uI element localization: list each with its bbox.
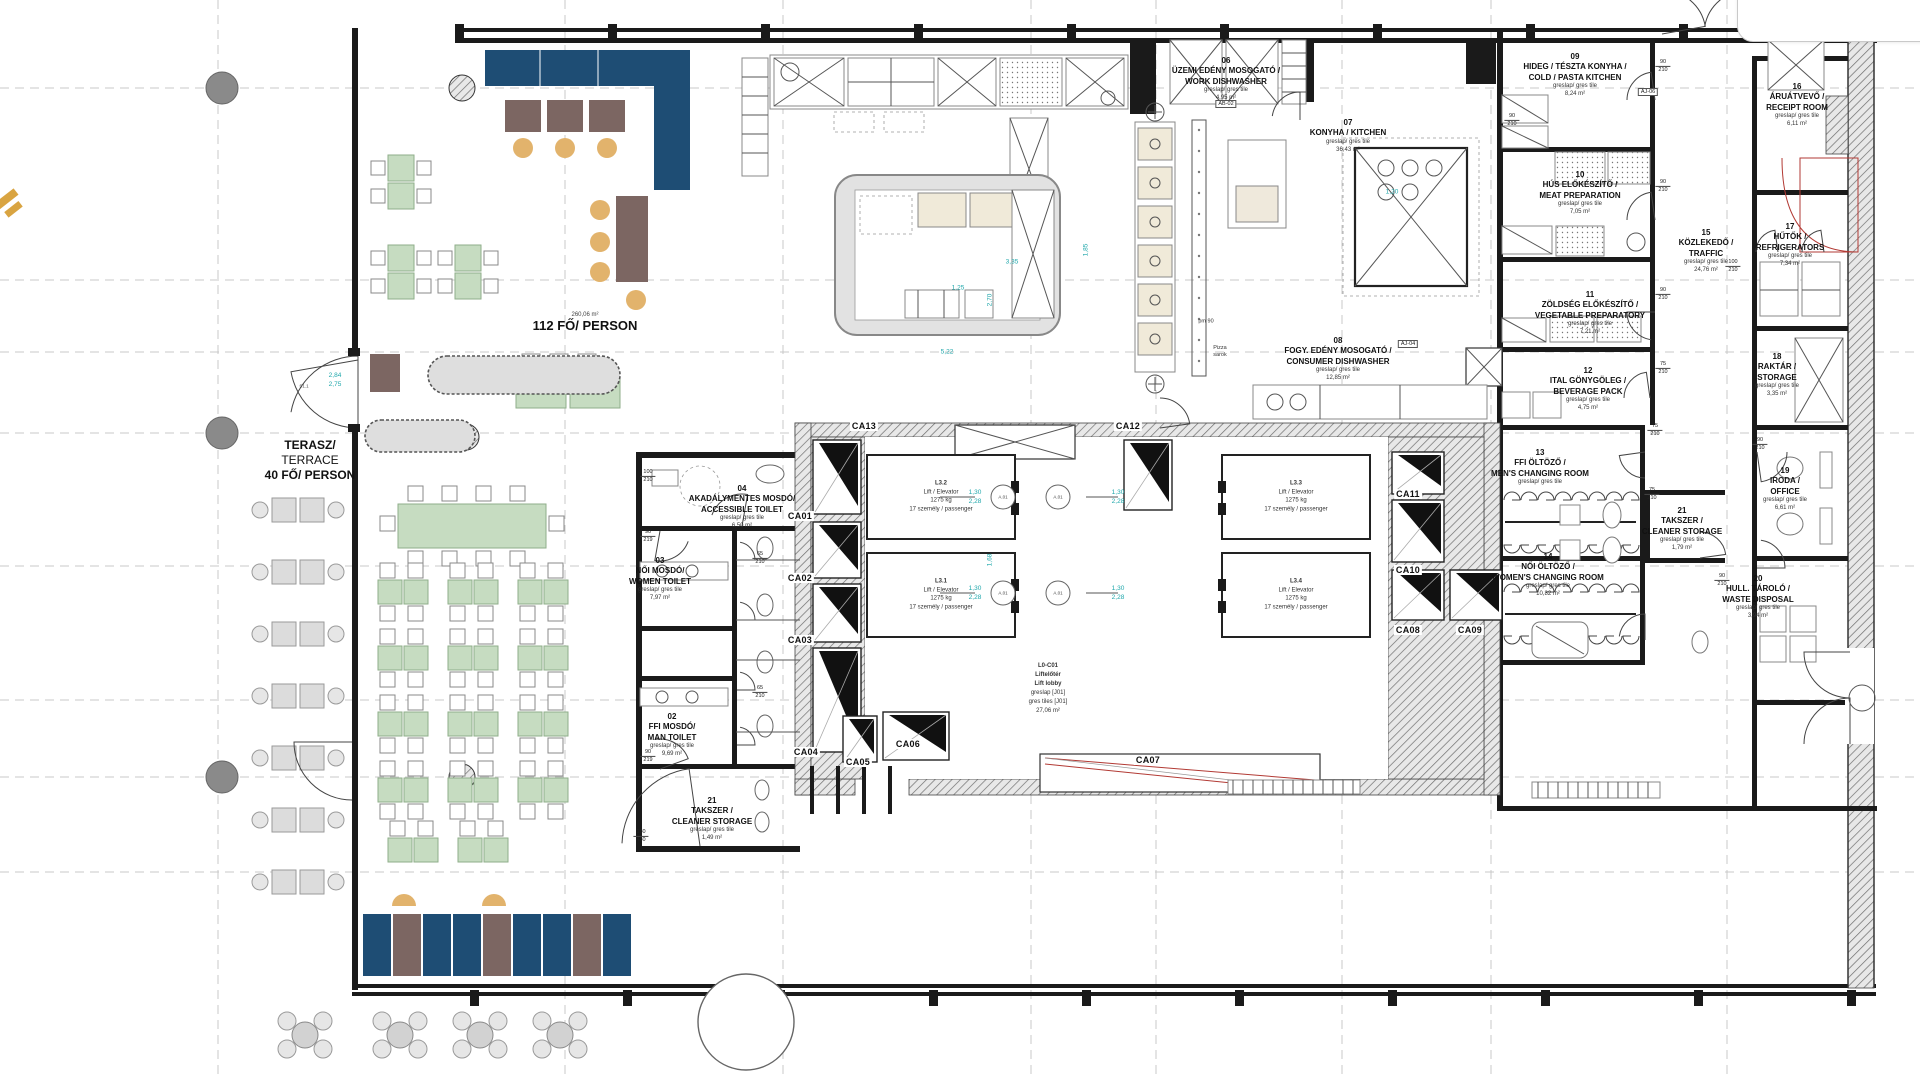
floorplan-screenshot: 260,06 m² 112 FŐ/ PERSON TERASZ/ TERRACE… [0,0,1920,1080]
floorplan-drawing [0,0,1920,1080]
overlay-card [1737,0,1920,42]
